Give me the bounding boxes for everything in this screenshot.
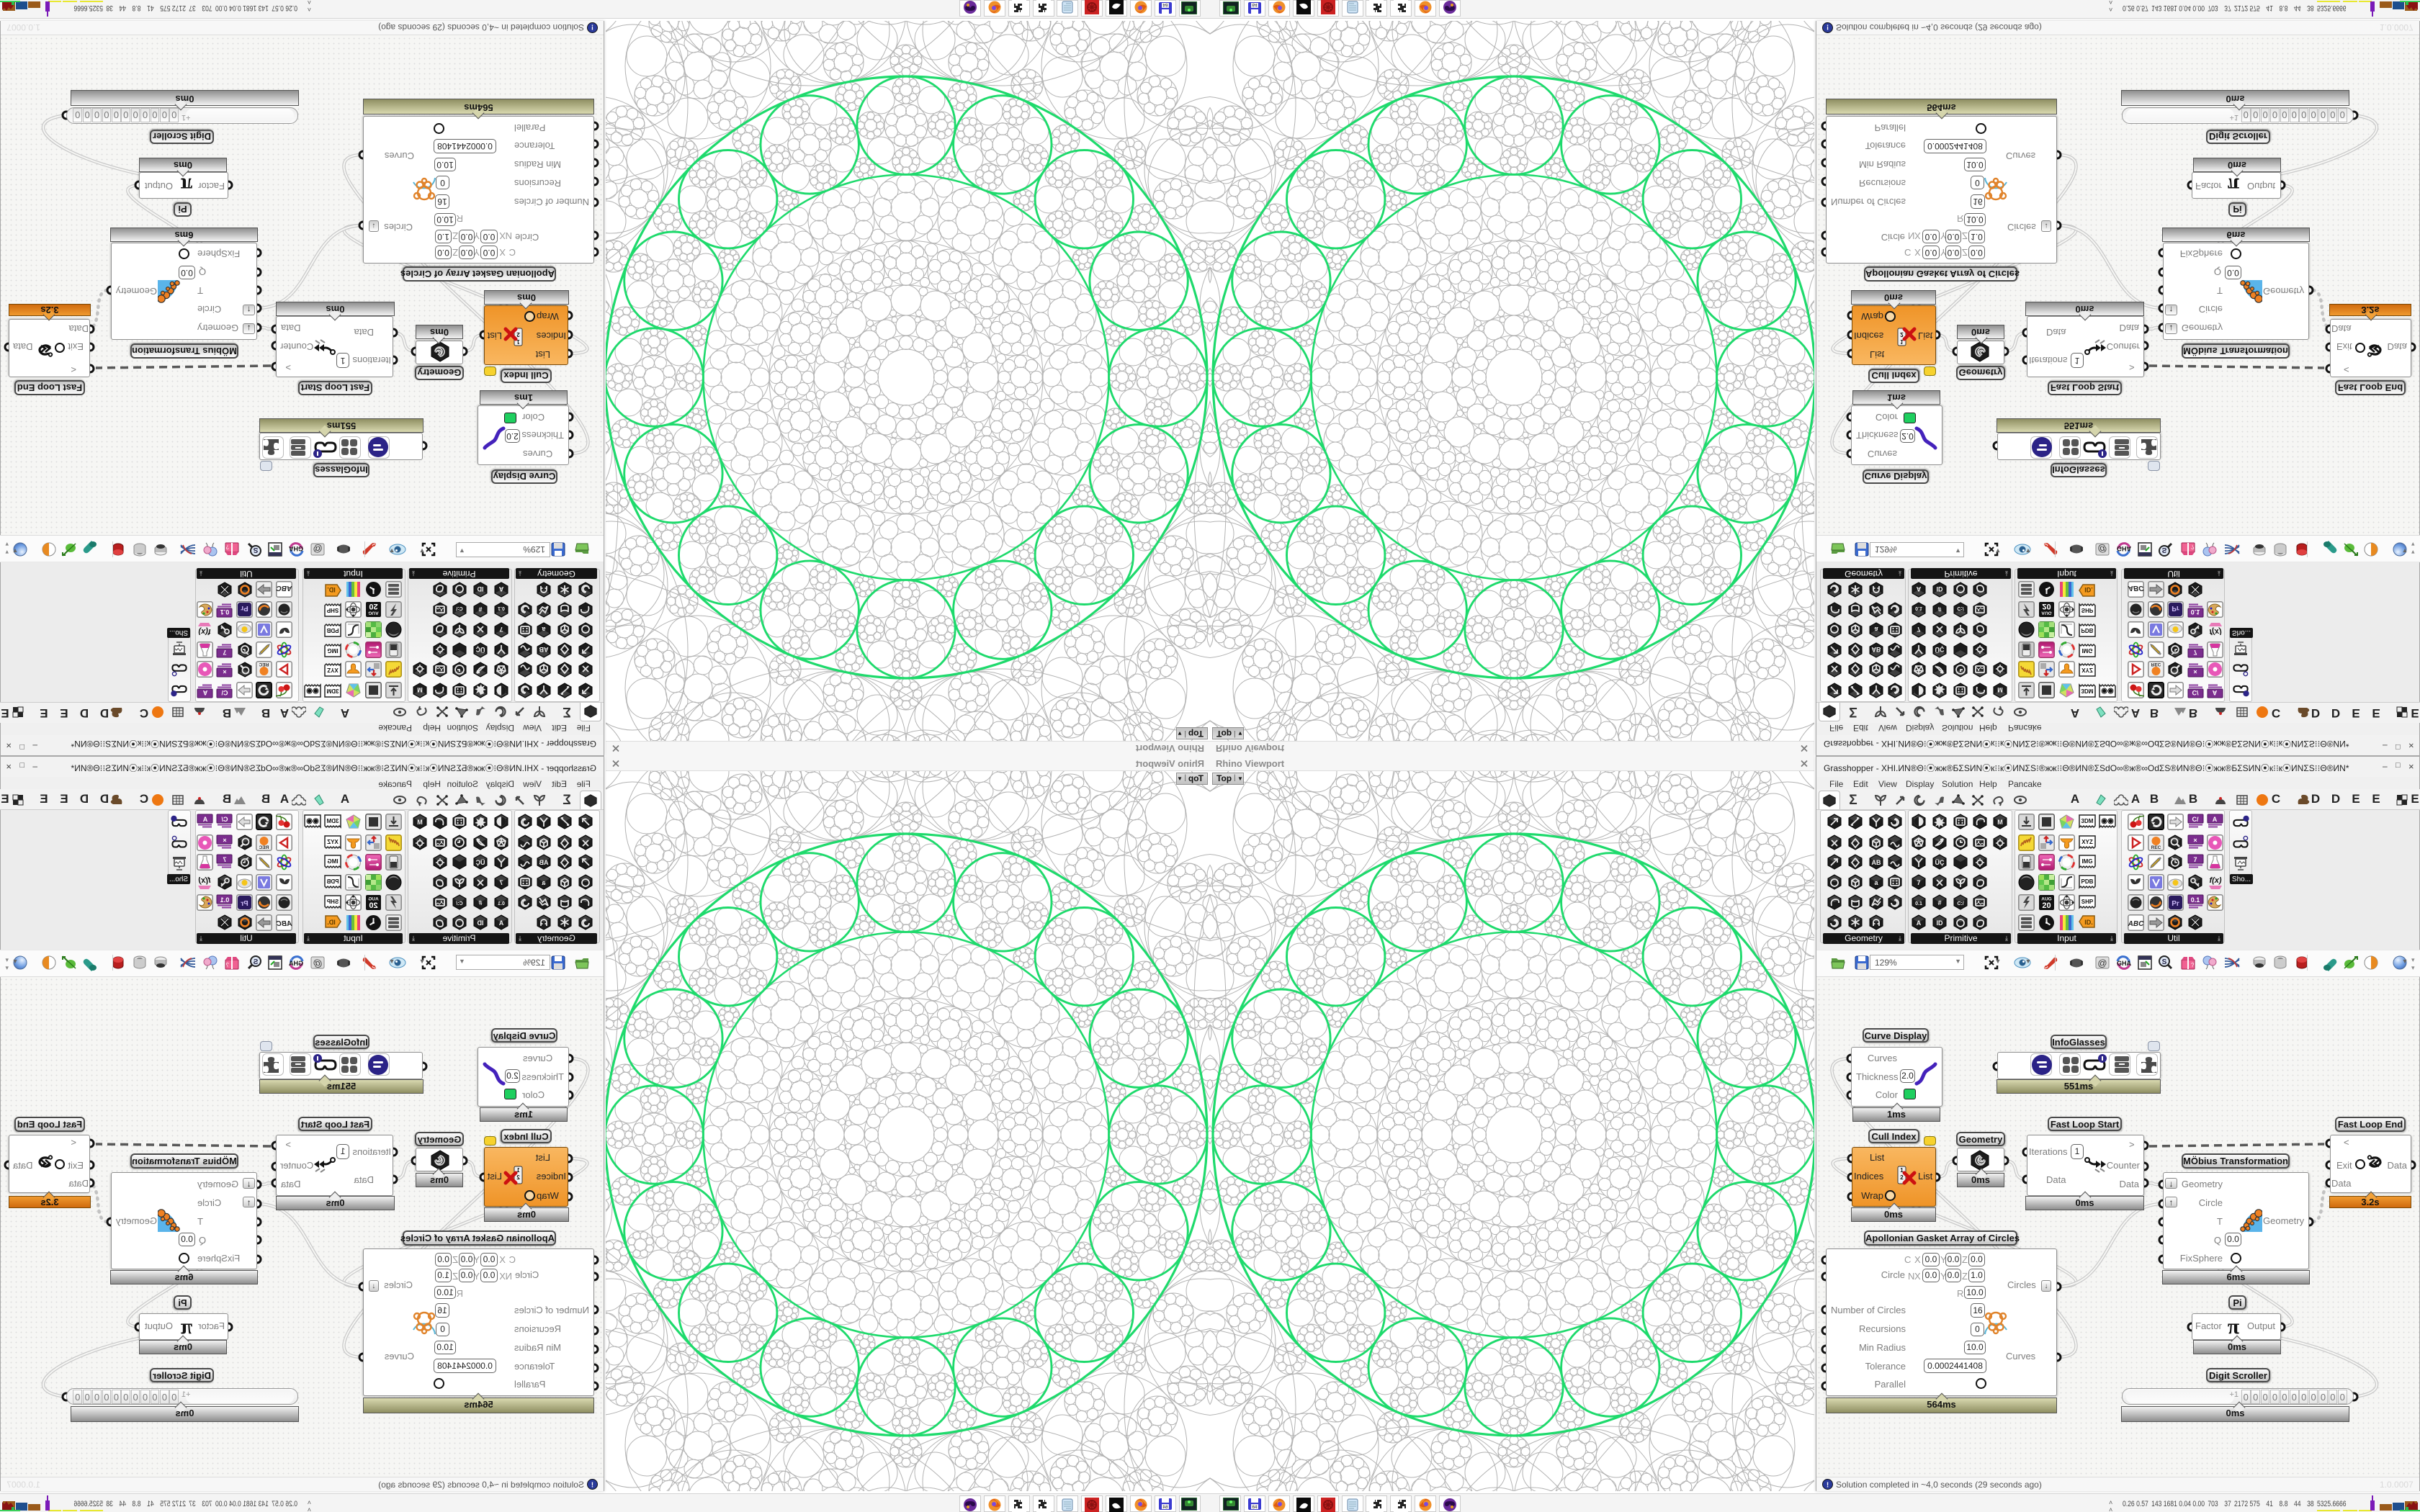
svg-text:π: π	[2228, 174, 2240, 197]
svg-text:C:/: C:/	[456, 901, 462, 906]
svg-text:M: M	[1997, 819, 2003, 826]
svg-text:!: !	[591, 1482, 593, 1490]
svg-text:A: A	[2213, 816, 2218, 823]
svg-text:A: A	[2213, 689, 2218, 696]
svg-text:M: M	[1997, 686, 2003, 693]
svg-text:0.1: 0.1	[2191, 896, 2200, 904]
svg-text:A: A	[1917, 585, 1922, 593]
svg-text:!: !	[1827, 23, 1829, 31]
svg-text:20: 20	[2042, 901, 2051, 910]
svg-text:0.1: 0.1	[220, 896, 230, 904]
svg-text:ABC: ABC	[2128, 584, 2144, 592]
svg-text:A: A	[498, 919, 503, 927]
svg-text:AUG: AUG	[368, 611, 378, 616]
svg-text:REC: REC	[259, 845, 269, 850]
svg-text:SHP: SHP	[2081, 607, 2094, 613]
svg-text:A: A	[202, 689, 207, 696]
svg-text:Pr: Pr	[2172, 604, 2179, 612]
svg-text:64: 64	[1162, 1506, 1168, 1510]
svg-text:64: 64	[1252, 2, 1258, 6]
svg-text:#: #	[478, 606, 482, 613]
svg-text:f(x): f(x)	[2209, 876, 2221, 885]
svg-text:XYZ: XYZ	[327, 839, 339, 845]
svg-text:2: 2	[516, 1174, 520, 1181]
svg-text:PDB: PDB	[326, 627, 339, 634]
svg-text:XYZ: XYZ	[327, 667, 339, 673]
svg-text:AB: AB	[1872, 859, 1881, 866]
svg-text:3DM: 3DM	[2081, 818, 2094, 824]
svg-text:π: π	[180, 174, 192, 197]
svg-text:7: 7	[499, 626, 503, 633]
svg-text:PDB: PDB	[2081, 627, 2094, 634]
svg-text:ABC: ABC	[276, 920, 292, 928]
svg-text:S: S	[2162, 546, 2167, 554]
svg-text:ABC: ABC	[276, 584, 292, 592]
svg-text:PDB: PDB	[326, 878, 339, 885]
svg-text:7: 7	[2193, 856, 2197, 863]
svg-text:SHP: SHP	[2081, 899, 2094, 905]
svg-text:IMG: IMG	[327, 647, 338, 654]
svg-text:C/: C/	[2192, 689, 2199, 696]
svg-text:◉◉: ◉◉	[2101, 817, 2114, 825]
svg-text:a: a	[542, 879, 546, 886]
svg-text:f(x): f(x)	[198, 627, 210, 636]
svg-text:S: S	[253, 546, 258, 554]
svg-text:S: S	[2162, 958, 2167, 966]
svg-text:3DM: 3DM	[326, 688, 339, 694]
svg-text:#: #	[1937, 899, 1941, 906]
svg-text:AUG: AUG	[2041, 611, 2051, 616]
svg-text:f(x): f(x)	[2209, 627, 2221, 636]
svg-text:a: a	[542, 626, 546, 633]
svg-text:64: 64	[1162, 2, 1168, 6]
svg-text:C:/: C:/	[1957, 606, 1963, 611]
svg-text:π: π	[180, 1315, 192, 1338]
svg-text:ID: ID	[1937, 919, 1944, 927]
svg-text:Pr: Pr	[241, 900, 248, 908]
svg-text:ABC: ABC	[2128, 920, 2144, 928]
svg-text:REC: REC	[259, 662, 269, 667]
svg-text:7: 7	[223, 856, 226, 863]
svg-text:!: !	[1827, 1482, 1829, 1490]
svg-text:0.1: 0.1	[220, 608, 230, 616]
svg-text:0.1: 0.1	[498, 606, 505, 611]
svg-text:PDB: PDB	[2081, 878, 2094, 885]
svg-text:◉◉: ◉◉	[306, 817, 319, 825]
svg-text:A: A	[1917, 919, 1922, 927]
svg-text:0.1: 0.1	[498, 901, 505, 906]
svg-text:IMG: IMG	[327, 858, 338, 865]
svg-text:f(x): f(x)	[198, 876, 210, 885]
svg-text:×: ×	[223, 837, 226, 844]
svg-text:C/: C/	[221, 816, 228, 823]
svg-text:×: ×	[223, 668, 226, 675]
svg-text:7: 7	[499, 879, 503, 886]
svg-text:0.1: 0.1	[1915, 901, 1922, 906]
svg-text:ÜÇ: ÜÇ	[1935, 859, 1945, 866]
svg-text:ID: ID	[477, 919, 484, 927]
svg-text:ID.: ID.	[2084, 919, 2093, 926]
svg-text:ID.: ID.	[2084, 586, 2093, 593]
svg-text:0.1: 0.1	[2191, 608, 2200, 616]
svg-text:M: M	[417, 686, 423, 693]
svg-text:REC: REC	[2151, 845, 2161, 850]
svg-text:64: 64	[1252, 1506, 1258, 1510]
svg-text:IMG: IMG	[2081, 647, 2092, 654]
svg-text:2: 2	[516, 331, 520, 338]
svg-text:C:/: C:/	[1957, 901, 1963, 906]
svg-text:π: π	[2228, 1315, 2240, 1338]
svg-text:ÜÇ: ÜÇ	[475, 646, 485, 653]
svg-text:ID.: ID.	[327, 919, 336, 926]
svg-text:XYZ: XYZ	[2081, 667, 2093, 673]
svg-text:AB: AB	[1872, 646, 1881, 653]
svg-text:Pr: Pr	[241, 604, 248, 612]
svg-text:Pr: Pr	[2172, 900, 2179, 908]
svg-text:REC: REC	[2151, 662, 2161, 667]
svg-text:C/: C/	[2192, 816, 2199, 823]
svg-text:A: A	[202, 816, 207, 823]
svg-text:XYZ: XYZ	[2081, 839, 2093, 845]
svg-text:C/: C/	[221, 689, 228, 696]
svg-text:AB: AB	[539, 646, 548, 653]
svg-text:2: 2	[1900, 1174, 1904, 1181]
svg-text:3DM: 3DM	[2081, 688, 2094, 694]
svg-text:20: 20	[369, 602, 377, 611]
svg-text:7: 7	[2193, 649, 2197, 656]
svg-text:20: 20	[2042, 602, 2051, 611]
svg-text:ÜÇ: ÜÇ	[1935, 646, 1945, 653]
svg-text:IMG: IMG	[2081, 858, 2092, 865]
svg-text:M: M	[417, 819, 423, 826]
svg-text:0.1: 0.1	[1915, 606, 1922, 611]
svg-text:SHP: SHP	[326, 899, 339, 905]
svg-text:×: ×	[2193, 837, 2197, 844]
svg-text:S: S	[253, 958, 258, 966]
svg-text:#: #	[478, 899, 482, 906]
svg-text:20: 20	[369, 901, 377, 910]
svg-text:SHP: SHP	[326, 607, 339, 613]
svg-text:7: 7	[1917, 626, 1920, 633]
svg-text:!: !	[591, 23, 593, 31]
svg-text:ID: ID	[477, 585, 484, 593]
svg-text:AB: AB	[539, 859, 548, 866]
svg-text:7: 7	[223, 649, 226, 656]
svg-text:#: #	[1937, 606, 1941, 613]
svg-text:ID.: ID.	[327, 586, 336, 593]
svg-text:◉◉: ◉◉	[306, 687, 319, 695]
svg-text:3DM: 3DM	[326, 818, 339, 824]
svg-text:C:/: C:/	[456, 606, 462, 611]
svg-text:◉◉: ◉◉	[2101, 687, 2114, 695]
svg-text:×: ×	[2193, 668, 2197, 675]
svg-text:ÜÇ: ÜÇ	[475, 859, 485, 866]
svg-text:ID: ID	[1937, 585, 1944, 593]
svg-text:A: A	[498, 585, 503, 593]
svg-text:7: 7	[1917, 879, 1920, 886]
svg-text:2: 2	[1900, 331, 1904, 338]
